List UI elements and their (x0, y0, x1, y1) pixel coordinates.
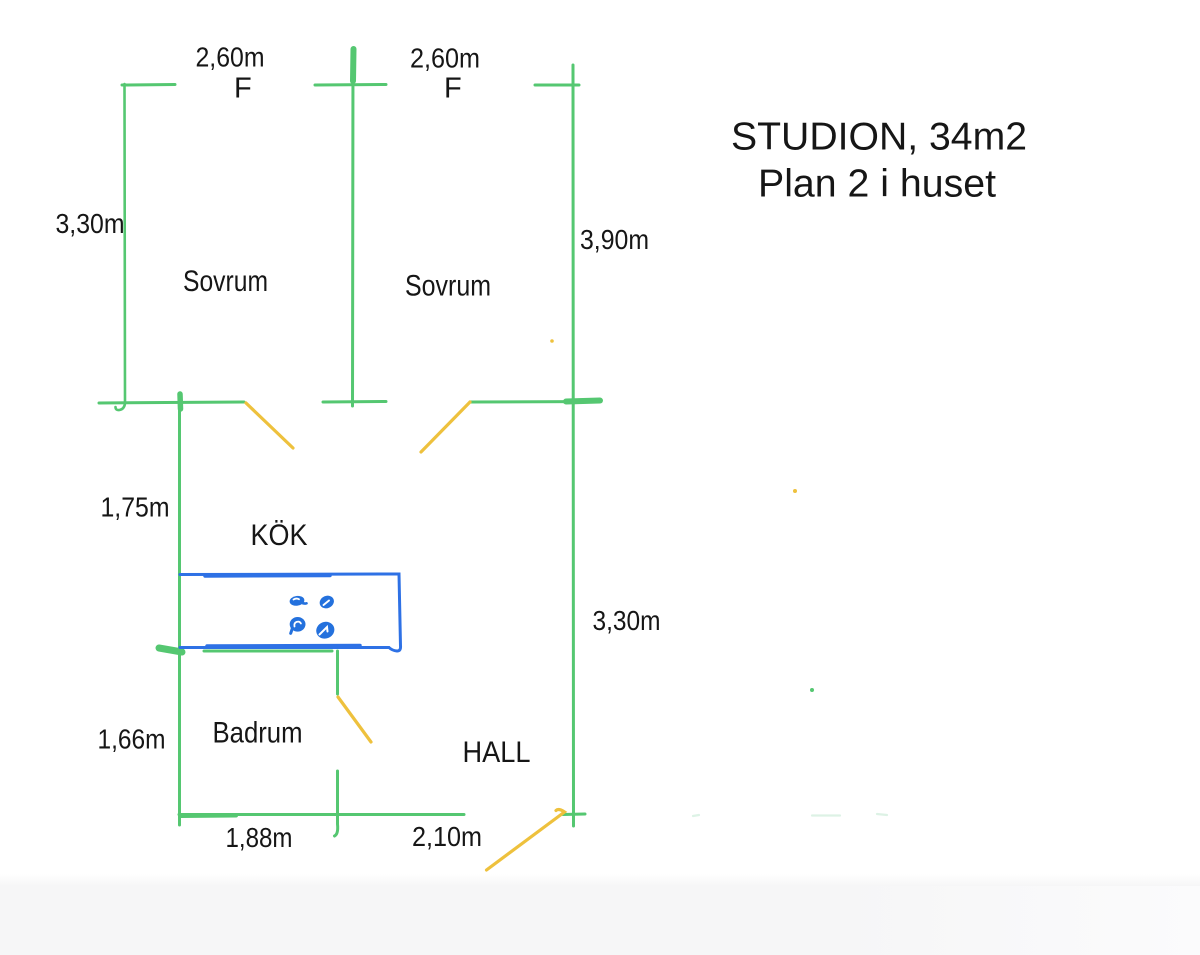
svg-text:2,60m: 2,60m (196, 42, 265, 73)
svg-text:KÖK: KÖK (251, 519, 308, 552)
svg-text:2,10m: 2,10m (412, 821, 482, 852)
svg-text:Badrum: Badrum (213, 717, 303, 750)
svg-text:2,60m: 2,60m (410, 43, 480, 74)
svg-text:3,30m: 3,30m (56, 208, 125, 239)
svg-text:F: F (444, 73, 462, 105)
svg-text:3,30m: 3,30m (593, 605, 661, 636)
svg-text:1,75m: 1,75m (101, 492, 170, 523)
svg-text:3,90m: 3,90m (580, 224, 649, 255)
svg-text:STUDION, 34m2: STUDION, 34m2 (731, 116, 1027, 159)
svg-text:Sovrum: Sovrum (405, 270, 491, 303)
svg-text:Plan 2 i huset: Plan 2 i huset (758, 162, 996, 205)
svg-text:F: F (234, 73, 252, 105)
svg-text:1,88m: 1,88m (226, 822, 293, 853)
svg-text:HALL: HALL (463, 736, 531, 769)
svg-text:1,66m: 1,66m (98, 724, 166, 755)
svg-text:Sovrum: Sovrum (183, 265, 268, 298)
